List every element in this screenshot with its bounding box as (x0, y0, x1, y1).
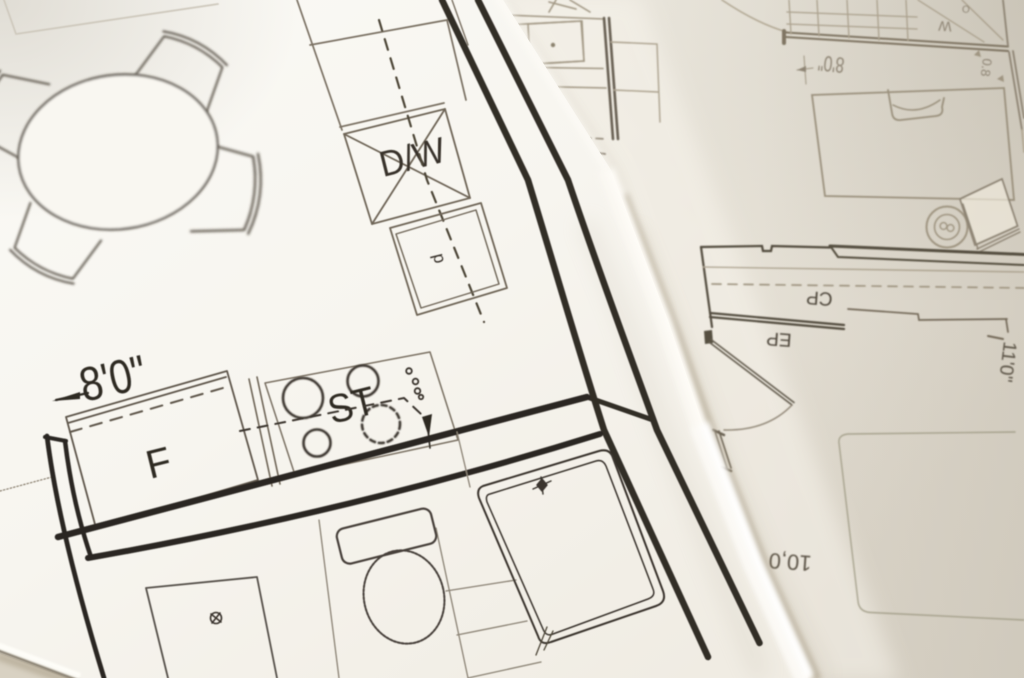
svg-text:O: O (961, 2, 970, 14)
svg-text:W: W (937, 18, 952, 35)
svg-text:8'0": 8'0" (817, 50, 846, 77)
svg-text:0.8: 0.8 (978, 58, 995, 78)
svg-text:EP: EP (766, 327, 793, 350)
svg-text:CP: CP (806, 286, 834, 309)
